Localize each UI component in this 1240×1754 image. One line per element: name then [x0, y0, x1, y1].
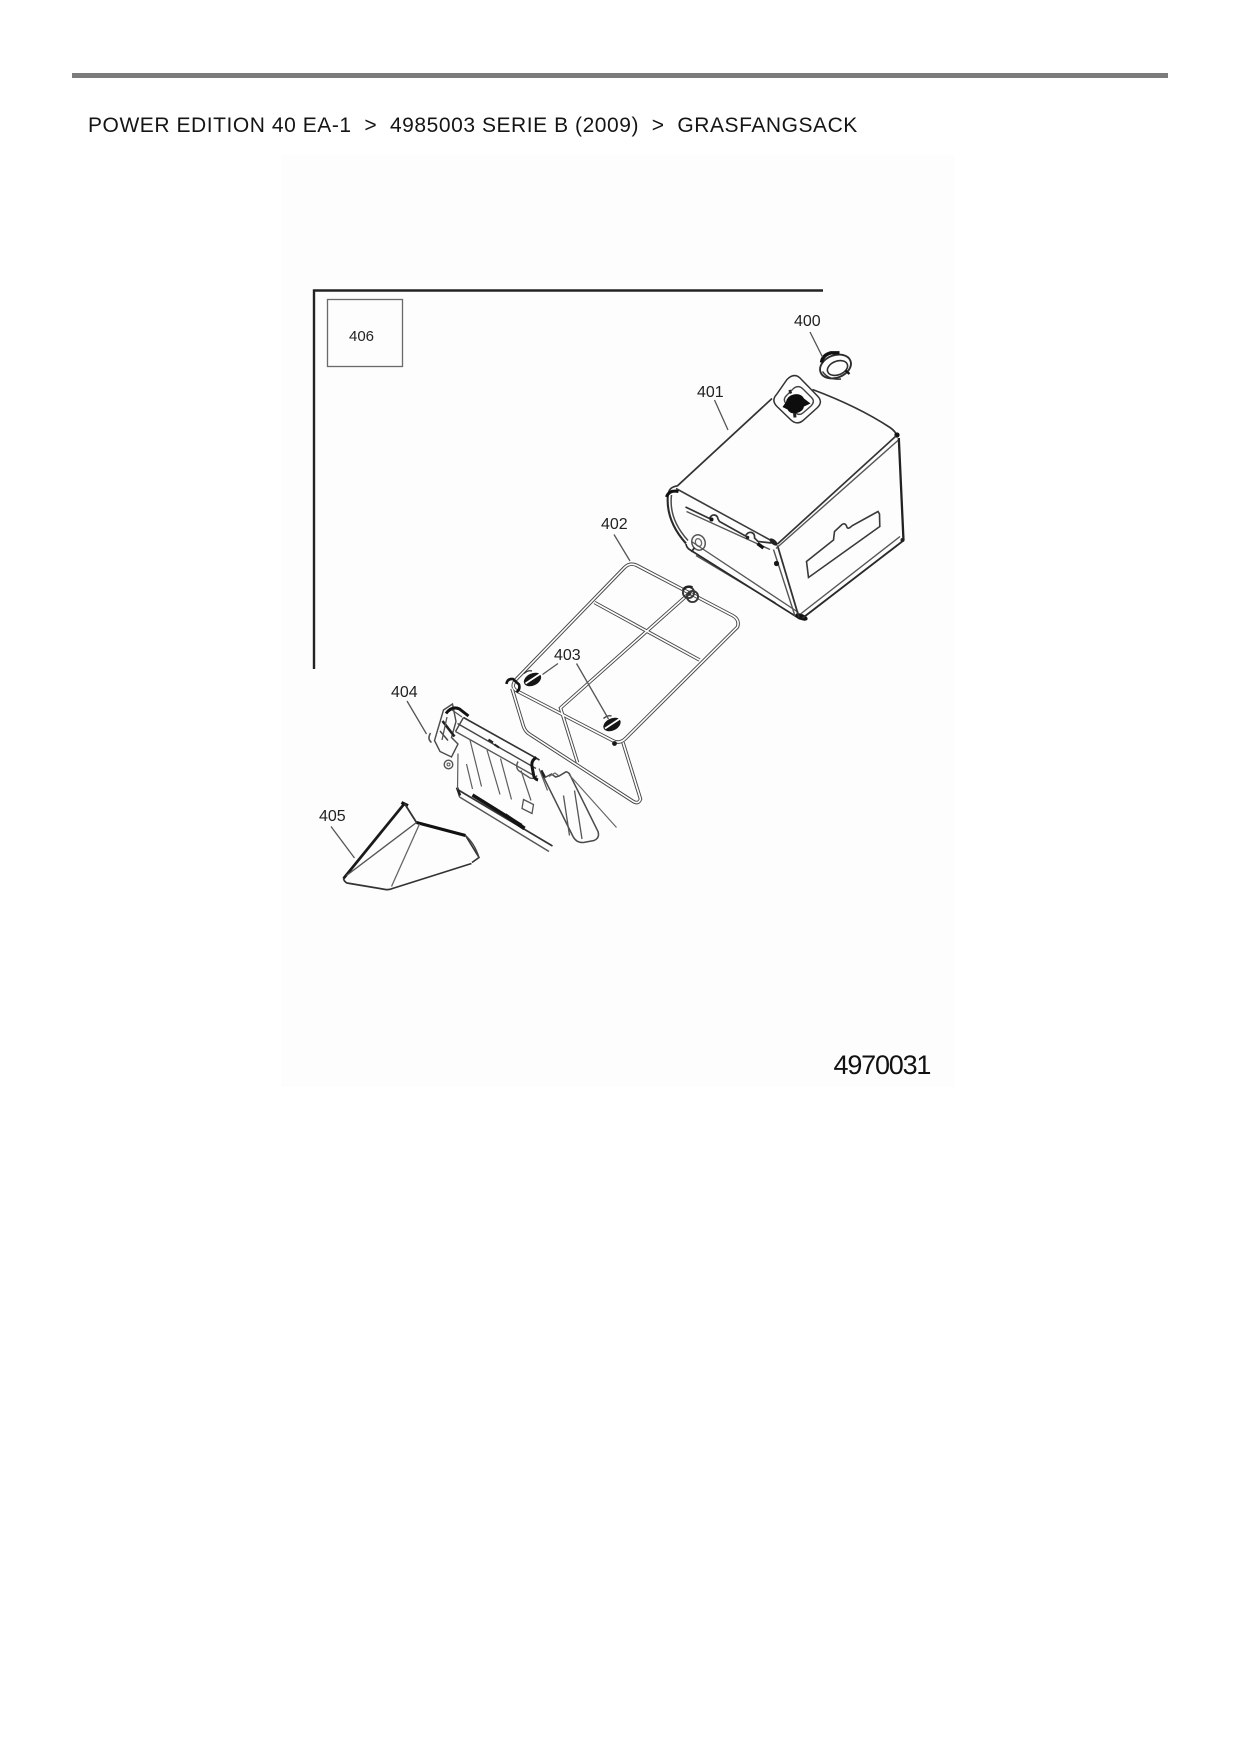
svg-text:404: 404 [391, 684, 418, 701]
svg-text:400: 400 [794, 313, 821, 330]
svg-text:406: 406 [349, 328, 374, 345]
svg-text:401: 401 [697, 384, 724, 401]
svg-text:4970031: 4970031 [834, 1050, 931, 1080]
svg-text:402: 402 [601, 516, 628, 533]
svg-text:405: 405 [319, 808, 346, 825]
svg-text:403: 403 [554, 647, 581, 664]
